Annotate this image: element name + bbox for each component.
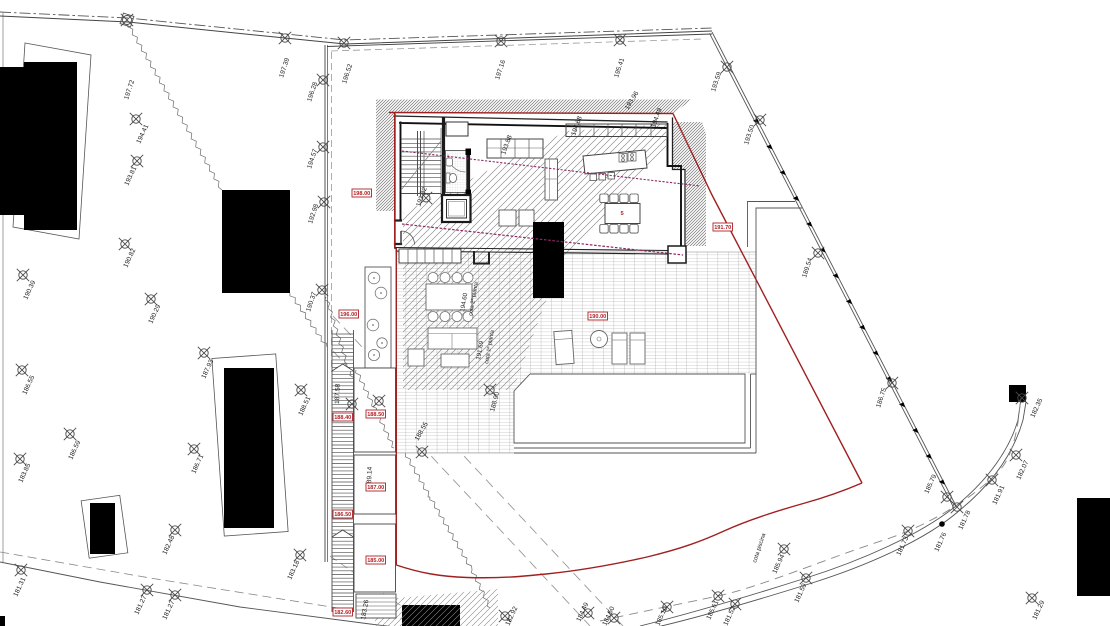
- svg-text:198.00: 198.00: [353, 191, 370, 197]
- svg-text:191.70: 191.70: [714, 225, 731, 231]
- svg-text:190.00: 190.00: [589, 314, 606, 320]
- svg-text:188.50: 188.50: [367, 412, 384, 418]
- svg-text:188.40: 188.40: [334, 415, 351, 421]
- svg-text:186.50: 186.50: [334, 512, 351, 518]
- svg-text:185.00: 185.00: [367, 558, 384, 564]
- svg-text:187.58: 187.58: [334, 383, 342, 404]
- svg-text:187.00: 187.00: [367, 485, 384, 491]
- svg-text:196.00: 196.00: [340, 312, 357, 318]
- svg-text:182.60: 182.60: [334, 610, 351, 616]
